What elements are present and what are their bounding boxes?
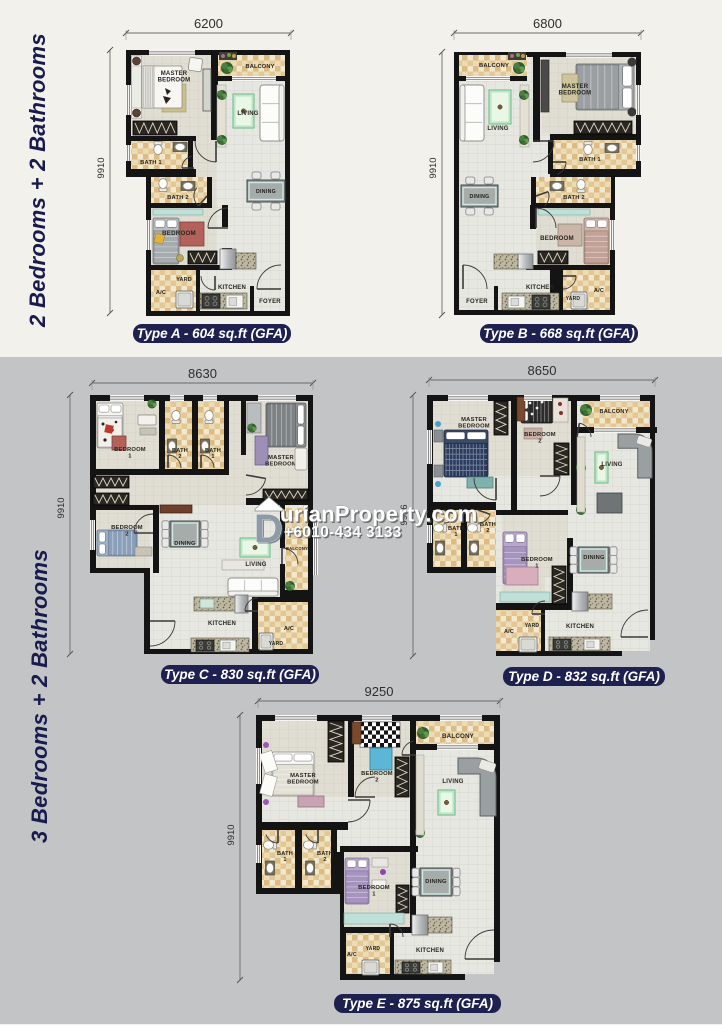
svg-text:A/C: A/C — [156, 290, 166, 296]
svg-text:YARD: YARD — [366, 946, 381, 952]
svg-text:MASTERBEDROOM: MASTERBEDROOM — [158, 71, 191, 83]
svg-text:YARD: YARD — [269, 641, 284, 647]
svg-text:LIVING: LIVING — [442, 779, 463, 785]
svg-text:KITCHEN: KITCHEN — [526, 285, 554, 291]
svg-text:FOYER: FOYER — [466, 299, 488, 305]
svg-text:A/C: A/C — [347, 952, 357, 958]
svg-text:A/C: A/C — [284, 626, 294, 632]
svg-text:KITCHEN: KITCHEN — [208, 621, 236, 627]
svg-text:9910: 9910 — [96, 157, 107, 178]
svg-text:DINING: DINING — [174, 541, 196, 547]
svg-text:8650: 8650 — [528, 363, 557, 378]
svg-text:BALCONY: BALCONY — [245, 64, 274, 70]
svg-text:YARD: YARD — [566, 296, 581, 302]
svg-text:9910: 9910 — [428, 157, 439, 178]
svg-text:BALCONY: BALCONY — [599, 409, 628, 415]
svg-text:MASTERBEDROOM: MASTERBEDROOM — [265, 455, 297, 467]
svg-text:A/C: A/C — [504, 629, 514, 635]
svg-text:MASTERBEDROOM: MASTERBEDROOM — [458, 417, 490, 429]
svg-text:DINING: DINING — [256, 189, 276, 195]
svg-text:6800: 6800 — [533, 16, 562, 31]
svg-text:BATH 2: BATH 2 — [563, 195, 585, 201]
svg-text:FOYER: FOYER — [259, 299, 281, 305]
svg-text:YARD: YARD — [525, 623, 540, 629]
svg-text:LIVING: LIVING — [601, 462, 622, 468]
svg-text:+6010-434 3133: +6010-434 3133 — [284, 524, 402, 541]
svg-text:DINING: DINING — [470, 194, 490, 200]
svg-text:8630: 8630 — [188, 366, 217, 381]
svg-text:9910: 9910 — [56, 497, 67, 518]
svg-text:YARD: YARD — [176, 277, 192, 283]
svg-text:BATH 1: BATH 1 — [140, 160, 162, 166]
svg-text:KITCHEN: KITCHEN — [416, 948, 444, 954]
svg-text:MASTERBEDROOM: MASTERBEDROOM — [559, 84, 592, 96]
svg-text:9250: 9250 — [365, 684, 394, 699]
svg-text:BEDROOM: BEDROOM — [162, 230, 196, 237]
svg-text:DINING: DINING — [583, 555, 605, 561]
svg-text:LIVING: LIVING — [487, 126, 508, 132]
svg-text:BALCONY: BALCONY — [479, 63, 509, 69]
svg-text:urianProperty.com: urianProperty.com — [280, 502, 477, 527]
svg-text:LIVING: LIVING — [245, 562, 266, 568]
svg-text:BEDROOM: BEDROOM — [540, 235, 574, 242]
svg-text:LIVING: LIVING — [237, 111, 258, 117]
svg-text:KITCHEN: KITCHEN — [566, 624, 594, 630]
svg-text:6200: 6200 — [194, 16, 223, 31]
svg-text:MASTERBEDROOM: MASTERBEDROOM — [287, 773, 319, 785]
svg-text:BATH 2: BATH 2 — [167, 195, 189, 201]
svg-text:BATH 1: BATH 1 — [579, 157, 601, 163]
svg-text:BALCONY: BALCONY — [442, 733, 475, 740]
svg-text:9910: 9910 — [226, 824, 237, 845]
svg-text:D: D — [254, 507, 283, 551]
svg-text:KITCHEN: KITCHEN — [218, 285, 246, 291]
svg-text:A/C: A/C — [594, 288, 604, 294]
svg-text:DINING: DINING — [425, 879, 447, 885]
